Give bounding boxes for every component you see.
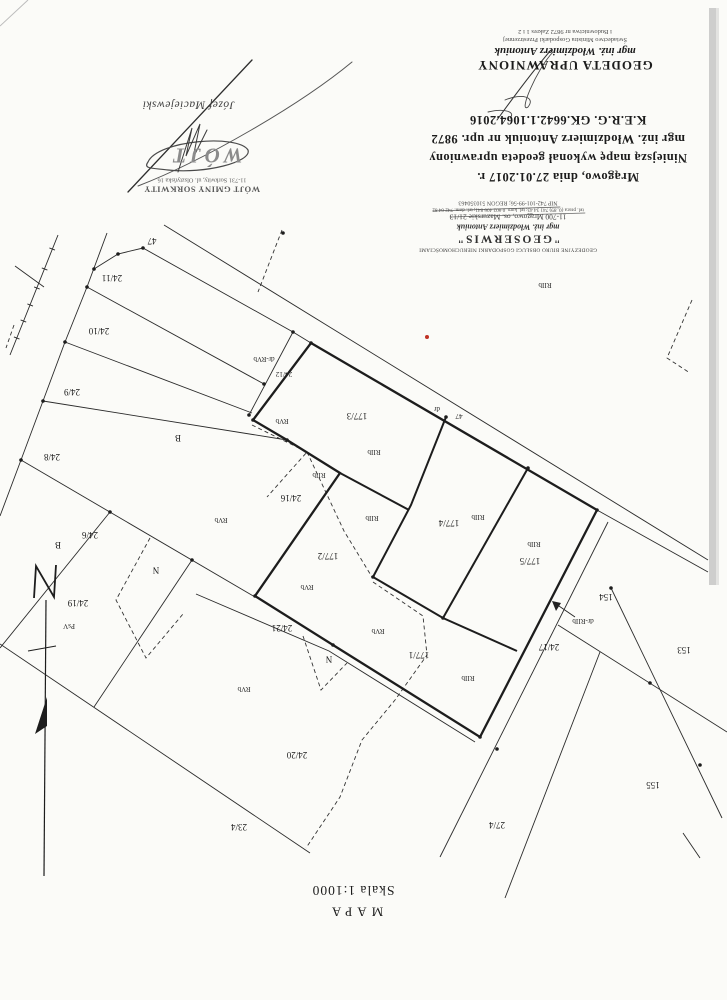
parcel-label: RIIb	[538, 281, 552, 289]
parcel-label: N	[152, 565, 159, 575]
parcel-label: RVb	[214, 516, 227, 524]
parcel-label: 153	[677, 645, 691, 655]
parcel-label: 24/11	[102, 273, 122, 283]
parcel-label: dr-RIIb	[572, 617, 594, 625]
parcel-label: 177/3	[346, 411, 367, 421]
geoserwis-stamp-person: mgr inż. Włodzimierz Antoniuk	[398, 221, 618, 231]
geodeta-stamp-cert2: i Budownictwa nr 9872 Zakres 1 i 2	[440, 26, 690, 34]
parcel-label: 155	[646, 780, 660, 790]
leader-arrow	[552, 601, 575, 617]
wojt-stamp: WÓJT GMINY SORKWITY 11-731 Sorkwity, ul.…	[132, 176, 272, 194]
parcel-label: 47	[455, 412, 463, 420]
north-arrow	[28, 565, 56, 876]
geoserwis-stamp-nip: NIP 742-101-99-56; REGON 510350463	[398, 198, 618, 206]
parcel-label: 24/16	[280, 493, 301, 503]
parcel-label: RIIb	[365, 514, 379, 522]
parcel-label: 154	[599, 592, 613, 602]
wojt-stamp-office: WÓJT GMINY SORKWITY	[132, 184, 272, 195]
parcel-label: 177/2	[318, 551, 339, 561]
parcel-label: RIIb	[461, 674, 475, 682]
wojt-signature-word: WÓJT	[152, 142, 260, 168]
parcel-boundaries	[0, 225, 727, 898]
parcel-label: B	[175, 433, 181, 443]
parcel-label: 24/19	[67, 598, 88, 608]
parcel-label: 24/10	[88, 326, 109, 336]
scanned-map-page: 4724/1124/1024/924/8Bdr-RVb24/12RVb177/3…	[0, 0, 727, 1000]
red-dot-mark	[425, 335, 429, 339]
surveyor-annotation: Mrągowo, dnia 27.01.2017 r. Niniejszą ma…	[408, 110, 708, 186]
annotation-date: Mrągowo, dnia 27.01.2017 r.	[408, 167, 708, 186]
landuse-dashed-lines	[6, 230, 692, 848]
geodeta-stamp-title: GEODETA UPRAWNIONY	[440, 57, 690, 73]
parcel-label: 177/4	[438, 518, 459, 528]
parcel-label: RIIb	[471, 513, 485, 521]
map-title-text: MAPA	[295, 903, 415, 919]
parcel-label: 24/6	[82, 530, 99, 540]
geoserwis-stamp-name: "GEOSERWIS"	[398, 231, 618, 245]
geoserwis-stamp-address: 11-700 Mrągowo, os. Mazurskie 21/13	[398, 212, 618, 221]
parcel-label: N	[325, 654, 332, 664]
boundary-points	[19, 231, 702, 767]
parcel-label: RVb	[237, 685, 250, 693]
scan-edge-artifact	[0, 0, 719, 585]
wojt-signature-name: Józef Maciejewski	[136, 97, 241, 111]
geodeta-stamp: GEODETA UPRAWNIONY mgr inż. Włodzimierz …	[440, 26, 690, 73]
annotation-kerg: K.E.R.G. GK.6642.1.1064.2016	[408, 110, 708, 129]
parcel-label: B	[55, 540, 61, 550]
geoserwis-stamp-header: GEODEZYJNE BIURO OBSŁUGI GOSPODARKI NIER…	[398, 246, 618, 253]
parcel-label: 177/1	[409, 650, 430, 660]
annotation-surveyor: mgr inż. Włodzimierz Antoniuk nr upr. 98…	[408, 129, 708, 148]
annotation-statement: Niniejszą mapę wykonał geodeta uprawnion…	[408, 148, 708, 167]
parcel-label: 24/9	[64, 387, 81, 397]
parcel-label: 24/21	[272, 623, 293, 633]
parcel-label: 23/4	[231, 822, 248, 832]
parcel-label: 27/4	[489, 820, 506, 830]
wojt-stamp-address: 11-731 Sorkwity, ul. Olsztyńska 16	[132, 176, 272, 184]
parcel-label: 24/17	[538, 642, 559, 652]
map-scale-text: Skala 1:1000	[278, 881, 428, 898]
parcel-label: 177/5	[519, 556, 540, 566]
geodeta-stamp-name: mgr inż. Włodzimierz Antoniuk	[440, 43, 690, 57]
signature-scribble	[128, 60, 352, 192]
geodeta-stamp-cert1: Świadectwo Ministra Gospodarki Przestrze…	[440, 34, 690, 42]
parcel-label: dr	[433, 405, 440, 413]
parcel-label: PsV	[62, 622, 75, 630]
geoserwis-stamp: GEODEZYJNE BIURO OBSŁUGI GOSPODARKI NIER…	[398, 198, 618, 252]
parcel-label: dr-RVb	[253, 355, 275, 363]
parcel-label: RVb	[300, 583, 313, 591]
parcel-labels-layer: 4724/1124/1024/924/8Bdr-RVb24/12RVb177/3…	[44, 236, 691, 832]
surveyed-parcel-block	[253, 343, 597, 737]
parcel-label: 47	[147, 236, 157, 246]
parcel-label: 24/12	[275, 370, 292, 378]
parcel-label: RIIb	[527, 540, 541, 548]
parcel-label: 24/8	[44, 452, 61, 462]
parcel-label: RVb	[371, 627, 384, 635]
parcel-label: 24/20	[286, 750, 307, 760]
parcel-label: RVb	[275, 417, 288, 425]
parcel-label: RIIb	[367, 448, 381, 456]
parcel-label: RIIb	[312, 471, 326, 479]
geoserwis-stamp-phones: tel. praca (0..89) 741 34 43; tel. kom. …	[398, 206, 618, 213]
